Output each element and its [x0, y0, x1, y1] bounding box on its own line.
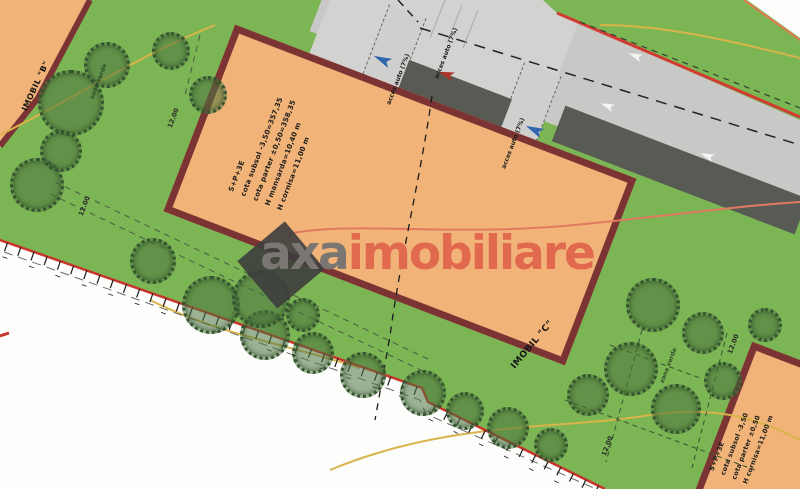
tree-icon: [40, 130, 82, 172]
tree-icon: [400, 370, 446, 416]
tree-icon: [748, 308, 782, 342]
tree-icon: [340, 352, 386, 398]
watermark-suffix: imobiliare: [348, 226, 594, 281]
tree-icon: [292, 332, 334, 374]
tree-icon: [626, 278, 680, 332]
tree-icon: [130, 238, 176, 284]
watermark: axaimobiliare: [260, 226, 594, 281]
site-plan: S+P+3E cota subsol -3,50=357,35 cota par…: [0, 0, 800, 489]
tree-icon: [534, 428, 568, 462]
tree-icon: [446, 392, 484, 430]
watermark-brand: axa: [260, 226, 348, 281]
tree-icon: [604, 342, 658, 396]
tree-icon: [567, 374, 609, 416]
tree-icon: [286, 298, 320, 332]
tree-icon: [182, 276, 240, 334]
tree-icon: [651, 384, 701, 434]
tree-icon: [189, 76, 227, 114]
tree-icon: [682, 312, 724, 354]
tree-icon: [152, 32, 190, 70]
tree-icon: [487, 407, 529, 449]
